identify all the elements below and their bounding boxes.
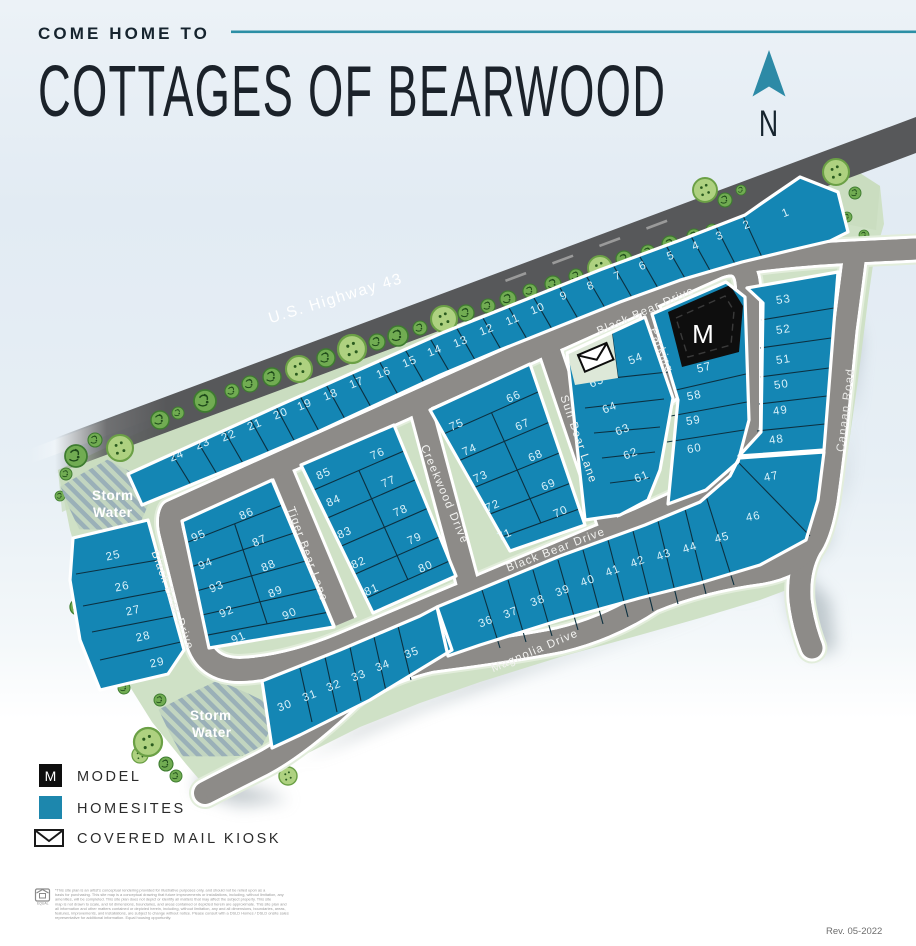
- svg-text:N: N: [759, 103, 778, 144]
- svg-text:52: 52: [775, 323, 791, 337]
- svg-text:M: M: [45, 768, 57, 784]
- svg-text:Rev. 05-2022: Rev. 05-2022: [826, 926, 882, 937]
- svg-text:53: 53: [775, 293, 791, 307]
- svg-text:COVERED MAIL KIOSK: COVERED MAIL KIOSK: [77, 831, 281, 847]
- svg-text:Storm: Storm: [190, 708, 232, 723]
- svg-text:MODEL: MODEL: [77, 769, 142, 785]
- svg-text:M: M: [692, 319, 714, 349]
- svg-text:Water: Water: [192, 725, 232, 740]
- svg-text:COME HOME TO: COME HOME TO: [38, 24, 210, 43]
- svg-text:representative for additional: representative for additional informatio…: [55, 915, 171, 920]
- svg-text:48: 48: [768, 433, 784, 447]
- svg-text:49: 49: [772, 404, 788, 418]
- svg-text:51: 51: [775, 353, 791, 367]
- svg-text:COTTAGES OF BEARWOOD: COTTAGES OF BEARWOOD: [38, 51, 666, 131]
- svg-text:Water: Water: [93, 505, 133, 520]
- svg-text:50: 50: [773, 378, 789, 392]
- svg-text:59: 59: [685, 414, 702, 428]
- svg-text:Storm: Storm: [92, 488, 134, 503]
- svg-text:HOMESITES: HOMESITES: [77, 801, 186, 817]
- svg-text:EQUAL: EQUAL: [37, 902, 49, 906]
- svg-text:60: 60: [686, 442, 703, 456]
